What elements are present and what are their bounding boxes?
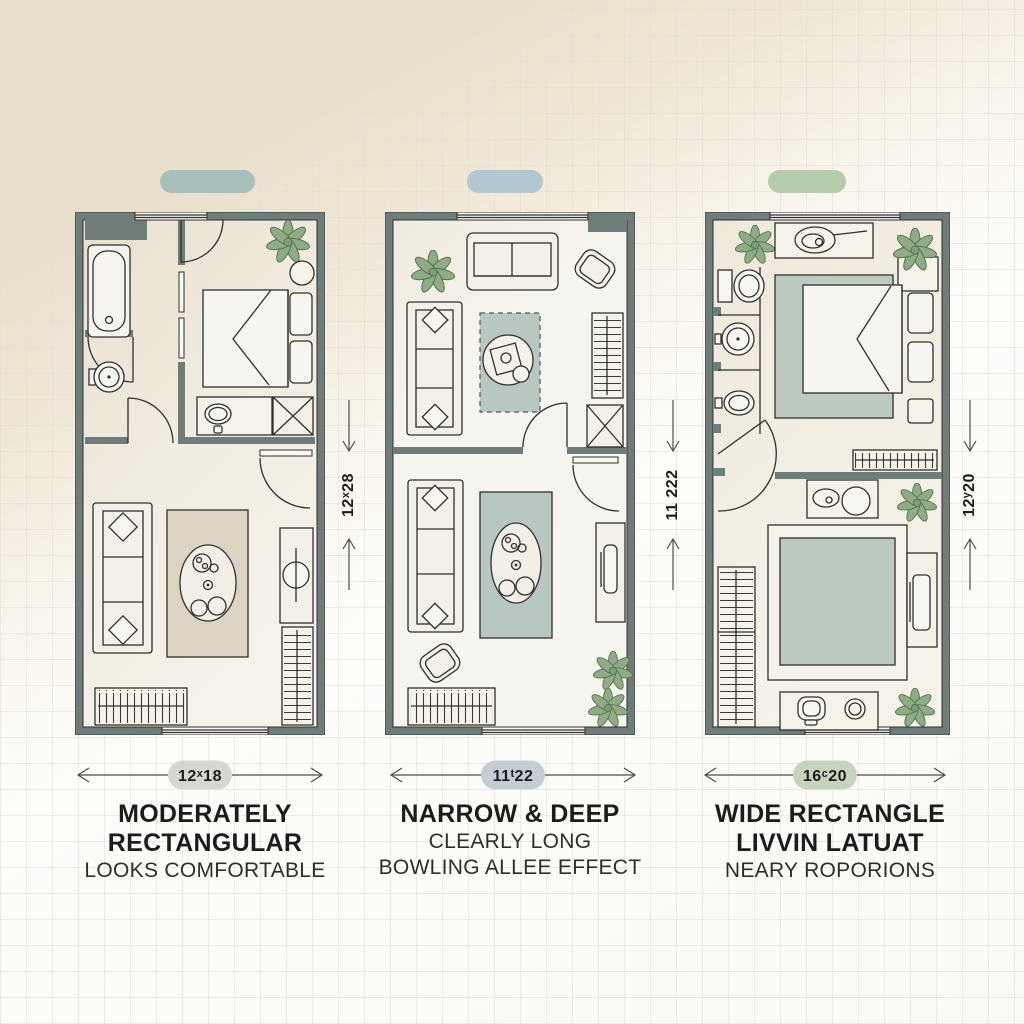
caption-title-line: MODERATELY [45,800,365,829]
media-console [596,523,625,622]
height-label: 12ʸ20 [961,473,978,517]
floor-plan-1 [75,212,325,735]
wardrobe-x [587,405,623,447]
window-top [457,212,588,220]
wash-table [807,480,878,518]
sofa [93,503,152,653]
pillow [908,342,933,382]
window-bottom [482,727,585,735]
media-console [907,553,937,647]
height-label: 11 222 [664,469,681,520]
caption-subtitle-line: LOOKS COMFORTABLE [45,858,365,884]
caption-title-line: NARROW & DEEP [350,800,670,829]
toilet [718,270,764,302]
bathtub [88,245,130,337]
window-top [770,212,900,220]
caption-1: MODERATELY RECTANGULAR LOOKS COMFORTABLE [45,800,365,884]
console-hatched [95,688,187,725]
color-swatch-pill-1 [160,170,255,193]
window-top [135,212,207,220]
coffee-table [491,523,541,603]
wardrobe-hatched [718,567,755,727]
pillow [290,293,312,335]
height-dimension-1: 12ˣ28 [337,400,361,590]
caption-subtitle-line: BOWLING ALLEE EFFECT [350,855,670,881]
console-hatched [408,688,495,725]
loveseat [467,233,558,290]
pillow [908,293,933,333]
caption-2: NARROW & DEEP CLEARLY LONG BOWLING ALLEE… [350,800,670,881]
caption-title-line: RECTANGULAR [45,829,365,858]
color-swatch-pill-2 [467,170,543,193]
caption-3: WIDE RECTANGLE LIVVIN LATUAT NEARY ROPOR… [670,800,990,884]
vanity-top [775,223,873,258]
floor-plan-2 [385,212,635,735]
sofa-lower [408,480,463,632]
side-table [290,261,314,285]
caption-title-line: WIDE RECTANGLE [670,800,990,829]
floor-plan-3 [705,212,950,735]
height-dimension-2: 11 222 [661,400,685,590]
sofa [407,302,462,435]
width-label: 16ᶜ20 [803,768,847,785]
width-dimension-2: 11ᵗ22 [388,760,638,790]
coffee-table [180,545,236,621]
vanity-bottom [780,692,878,730]
width-label: 11ᵗ22 [493,768,534,785]
caption-title-line: LIVVIN LATUAT [670,829,990,858]
dresser-hatched-top [853,450,937,470]
window-bottom [162,727,268,735]
pillow [290,341,312,383]
dresser-hatched [282,627,313,725]
width-dimension-1: 12ˣ18 [75,760,325,790]
wardrobe-x [273,397,313,435]
door-leaf-panel [179,272,184,312]
caption-subtitle-line: CLEARLY LONG [350,829,670,855]
width-label: 12ˣ18 [178,768,222,785]
color-swatch-pill-3 [768,170,846,193]
bookshelf-hatched [592,313,623,398]
console-mirror [280,528,313,623]
width-dimension-3: 16ᶜ20 [702,760,948,790]
door-leaf-panel [179,318,184,358]
caption-subtitle-line: NEARY ROPORIONS [670,858,990,884]
nightstand [908,399,933,423]
rug-border [768,525,907,680]
height-label: 12ˣ28 [340,473,357,517]
vanity [197,397,272,435]
round-table [483,335,533,385]
height-dimension-3: 12ʸ20 [958,400,982,590]
floor-plan-poster: 12ˣ28 12ˣ18 MODERATELY RECTANGULAR LOOKS… [0,0,1024,1024]
